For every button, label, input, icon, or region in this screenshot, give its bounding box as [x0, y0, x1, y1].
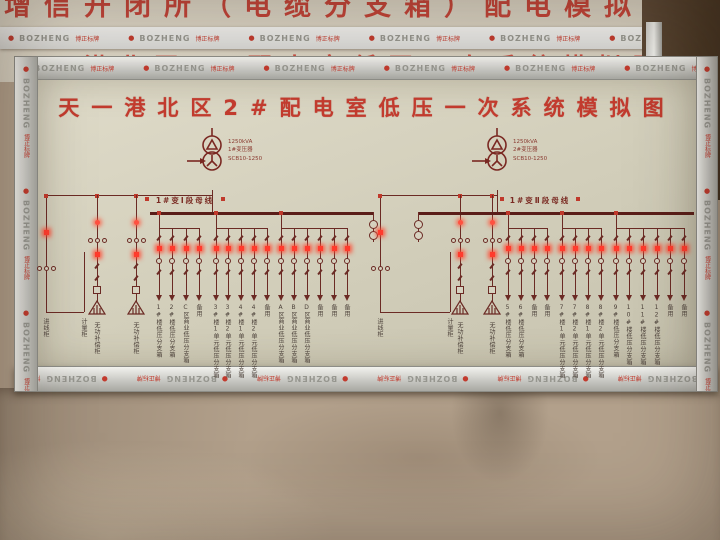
brand-mark: 博正标牌 — [90, 64, 114, 73]
board-title: 天一港北区2#配电室低压一次系统模拟图 — [38, 92, 696, 122]
brand-mark: ● — [102, 375, 108, 383]
brand-mark: ● — [369, 34, 375, 42]
brand-mark: 博正标牌 — [571, 64, 595, 73]
brand-tape: ●BOZHENG博正标牌●BOZHENG博正标牌●BOZHENG博正标牌●BOZ… — [0, 27, 658, 49]
brand-text: BOZHENG — [406, 375, 457, 384]
brand-mark: ● — [143, 64, 149, 72]
brand-text: BOZHENG — [703, 322, 712, 373]
brand-mark: ● — [583, 375, 589, 383]
brand-mark: ● — [249, 34, 255, 42]
brand-text: BOZHENG — [22, 322, 31, 373]
brand-tape: ●BOZHENG博正标牌●BOZHENG博正标牌●BOZHENG博正标牌●BOZ… — [15, 367, 717, 391]
brand-text: BOZHENG — [46, 375, 97, 384]
brand-text: BOZHENG — [380, 34, 431, 43]
brand-text: BOZHENG — [515, 64, 566, 73]
brand-text: BOZHENG — [647, 375, 698, 384]
brand-mark: ● — [22, 187, 30, 195]
frame-left-bar: ●BOZHENG博正标牌●BOZHENG博正标牌●BOZHENG博正标牌 — [14, 56, 38, 392]
brand-mark: 博正标牌 — [436, 34, 460, 43]
brand-mark: ● — [609, 34, 615, 42]
brand-mark: ● — [264, 64, 270, 72]
brand-mark: ● — [342, 375, 348, 383]
mimic-board: 天一港北区2#配电室低压一次系统模拟图 — [38, 80, 696, 366]
brand-mark: 博正标牌 — [703, 378, 712, 391]
brand-mark: ● — [22, 65, 30, 73]
brand-mark: 博正标牌 — [22, 134, 31, 158]
brand-text: BOZHENG — [703, 200, 712, 251]
brand-mark: 博正标牌 — [331, 64, 355, 73]
brand-mark: 博正标牌 — [377, 375, 401, 384]
brand-mark: ● — [489, 34, 495, 42]
brand-mark: ● — [504, 64, 510, 72]
frame-bottom-bar: ●BOZHENG博正标牌●BOZHENG博正标牌●BOZHENG博正标牌●BOZ… — [14, 366, 718, 392]
brand-mark: ● — [128, 34, 134, 42]
brand-text: BOZHENG — [22, 78, 31, 129]
background-board-title-top: 增信开闭所（电缆分支箱）配电模拟图 — [4, 0, 662, 23]
concrete-floor — [0, 388, 720, 540]
brand-mark: 博正标牌 — [22, 256, 31, 280]
background-frame-bar: ●BOZHENG博正标牌●BOZHENG博正标牌●BOZHENG博正标牌●BOZ… — [0, 27, 658, 49]
brand-mark: 博正标牌 — [556, 34, 580, 43]
brand-text: BOZHENG — [34, 64, 85, 73]
brand-mark: ● — [8, 34, 14, 42]
brand-mark: 博正标牌 — [498, 375, 522, 384]
brand-mark: 博正标牌 — [137, 375, 161, 384]
brand-mark: ● — [703, 187, 711, 195]
brand-text: BOZHENG — [635, 64, 686, 73]
brand-text: BOZHENG — [275, 64, 326, 73]
brand-mark: 博正标牌 — [703, 256, 712, 280]
brand-mark: 博正标牌 — [75, 34, 99, 43]
brand-text: BOZHENG — [500, 34, 551, 43]
brand-mark: ● — [384, 64, 390, 72]
brand-tape: ●BOZHENG博正标牌●BOZHENG博正标牌●BOZHENG博正标牌 — [697, 57, 717, 391]
brand-tape: ●BOZHENG博正标牌●BOZHENG博正标牌●BOZHENG博正标牌●BOZ… — [15, 57, 717, 79]
brand-mark: 博正标牌 — [451, 64, 475, 73]
brand-text: BOZHENG — [286, 375, 337, 384]
brand-text: BOZHENG — [703, 78, 712, 129]
brand-tape: ●BOZHENG博正标牌●BOZHENG博正标牌●BOZHENG博正标牌 — [15, 57, 37, 391]
brand-mark: 博正标牌 — [316, 34, 340, 43]
brand-mark: ● — [624, 64, 630, 72]
brand-mark: ● — [22, 309, 30, 317]
brand-text: BOZHENG — [166, 375, 217, 384]
brand-text: BOZHENG — [139, 34, 190, 43]
brand-text: BOZHENG — [19, 34, 70, 43]
frame-top-bar: ●BOZHENG博正标牌●BOZHENG博正标牌●BOZHENG博正标牌●BOZ… — [14, 56, 718, 80]
frame-right-bar: ●BOZHENG博正标牌●BOZHENG博正标牌●BOZHENG博正标牌 — [696, 56, 718, 392]
brand-mark: 博正标牌 — [195, 34, 219, 43]
brand-mark: ● — [703, 309, 711, 317]
brand-mark: 博正标牌 — [22, 378, 31, 391]
photo-scene: 增信开闭所（电缆分支箱）配电模拟图 天一港北区1#配电室低压一次系统模拟图 ●B… — [0, 0, 720, 540]
brand-text: BOZHENG — [154, 64, 205, 73]
brand-text: BOZHENG — [527, 375, 578, 384]
brand-mark: 博正标牌 — [210, 64, 234, 73]
brand-mark: ● — [222, 375, 228, 383]
brand-mark: 博正标牌 — [618, 375, 642, 384]
brand-text: BOZHENG — [395, 64, 446, 73]
brand-text: BOZHENG — [22, 200, 31, 251]
brand-mark: 博正标牌 — [257, 375, 281, 384]
brand-mark: ● — [462, 375, 468, 383]
brand-mark: ● — [703, 65, 711, 73]
brand-mark: 博正标牌 — [703, 134, 712, 158]
brand-text: BOZHENG — [260, 34, 311, 43]
